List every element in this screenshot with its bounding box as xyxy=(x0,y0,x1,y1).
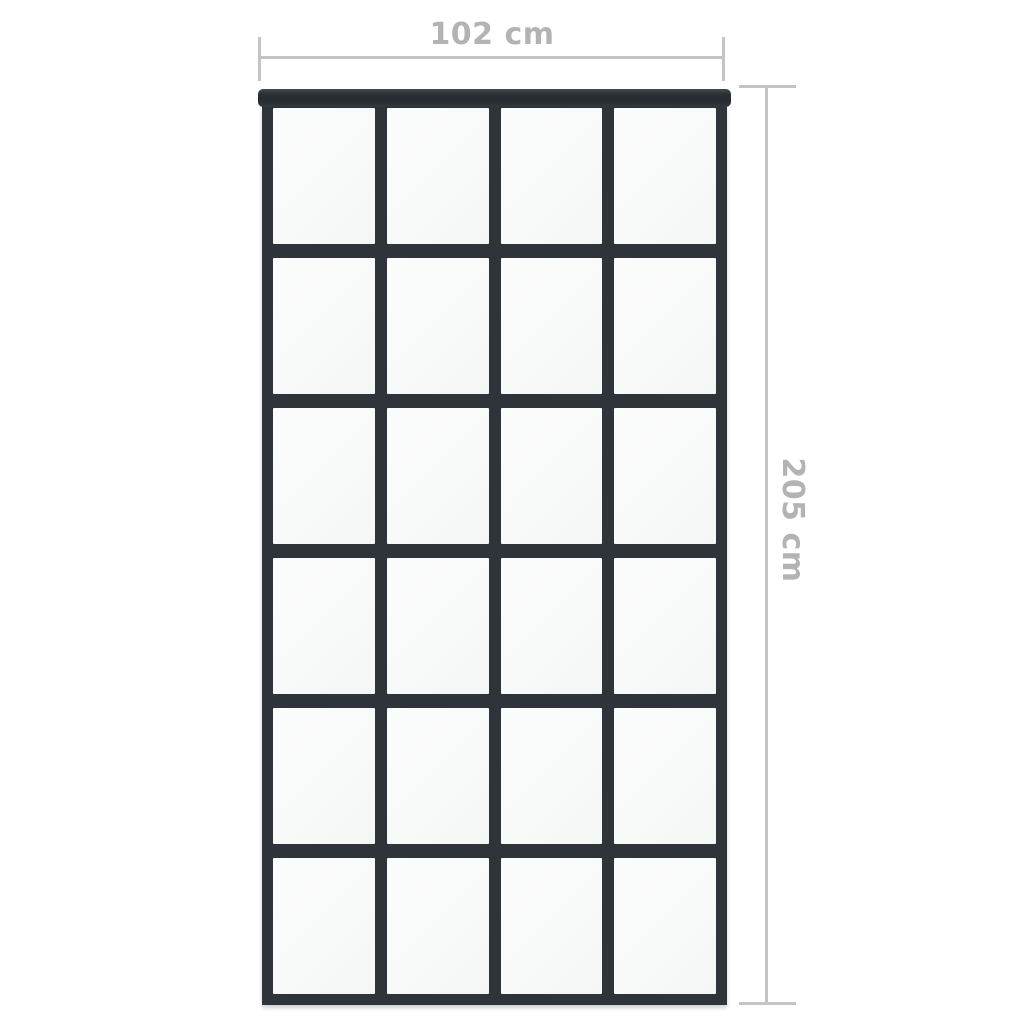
glass-pane xyxy=(614,108,716,244)
width-dimension-tick-left xyxy=(258,37,261,81)
glass-pane xyxy=(614,858,716,994)
glass-pane xyxy=(387,258,489,394)
glass-pane xyxy=(501,558,603,694)
width-dimension-label: 102 cm xyxy=(259,20,725,50)
glass-pane xyxy=(273,858,375,994)
glass-pane xyxy=(614,408,716,544)
product-dimension-image: 102 cm 205 cm xyxy=(0,0,1024,1024)
glass-pane xyxy=(614,258,716,394)
glass-pane xyxy=(273,708,375,844)
width-dimension-tick-right xyxy=(722,37,725,81)
glass-pane xyxy=(501,708,603,844)
glass-pane xyxy=(387,408,489,544)
width-dimension-line xyxy=(259,56,725,59)
glass-pane xyxy=(387,558,489,694)
glass-pane xyxy=(273,558,375,694)
glass-pane xyxy=(501,258,603,394)
glass-pane xyxy=(387,858,489,994)
glass-pane xyxy=(501,858,603,994)
height-dimension-line xyxy=(765,87,768,1004)
glass-pane xyxy=(501,108,603,244)
glass-pane xyxy=(614,558,716,694)
glass-pane xyxy=(273,258,375,394)
glass-pane xyxy=(387,108,489,244)
door-frame xyxy=(262,106,727,1005)
door-top-rail xyxy=(258,89,731,107)
glass-pane xyxy=(614,708,716,844)
glass-pane xyxy=(387,708,489,844)
glass-pane xyxy=(501,408,603,544)
glass-pane xyxy=(273,108,375,244)
height-dimension-tick-top xyxy=(739,85,796,88)
height-dimension-tick-bottom xyxy=(739,1002,796,1005)
glass-pane xyxy=(273,408,375,544)
height-dimension-label: 205 cm xyxy=(772,420,812,620)
